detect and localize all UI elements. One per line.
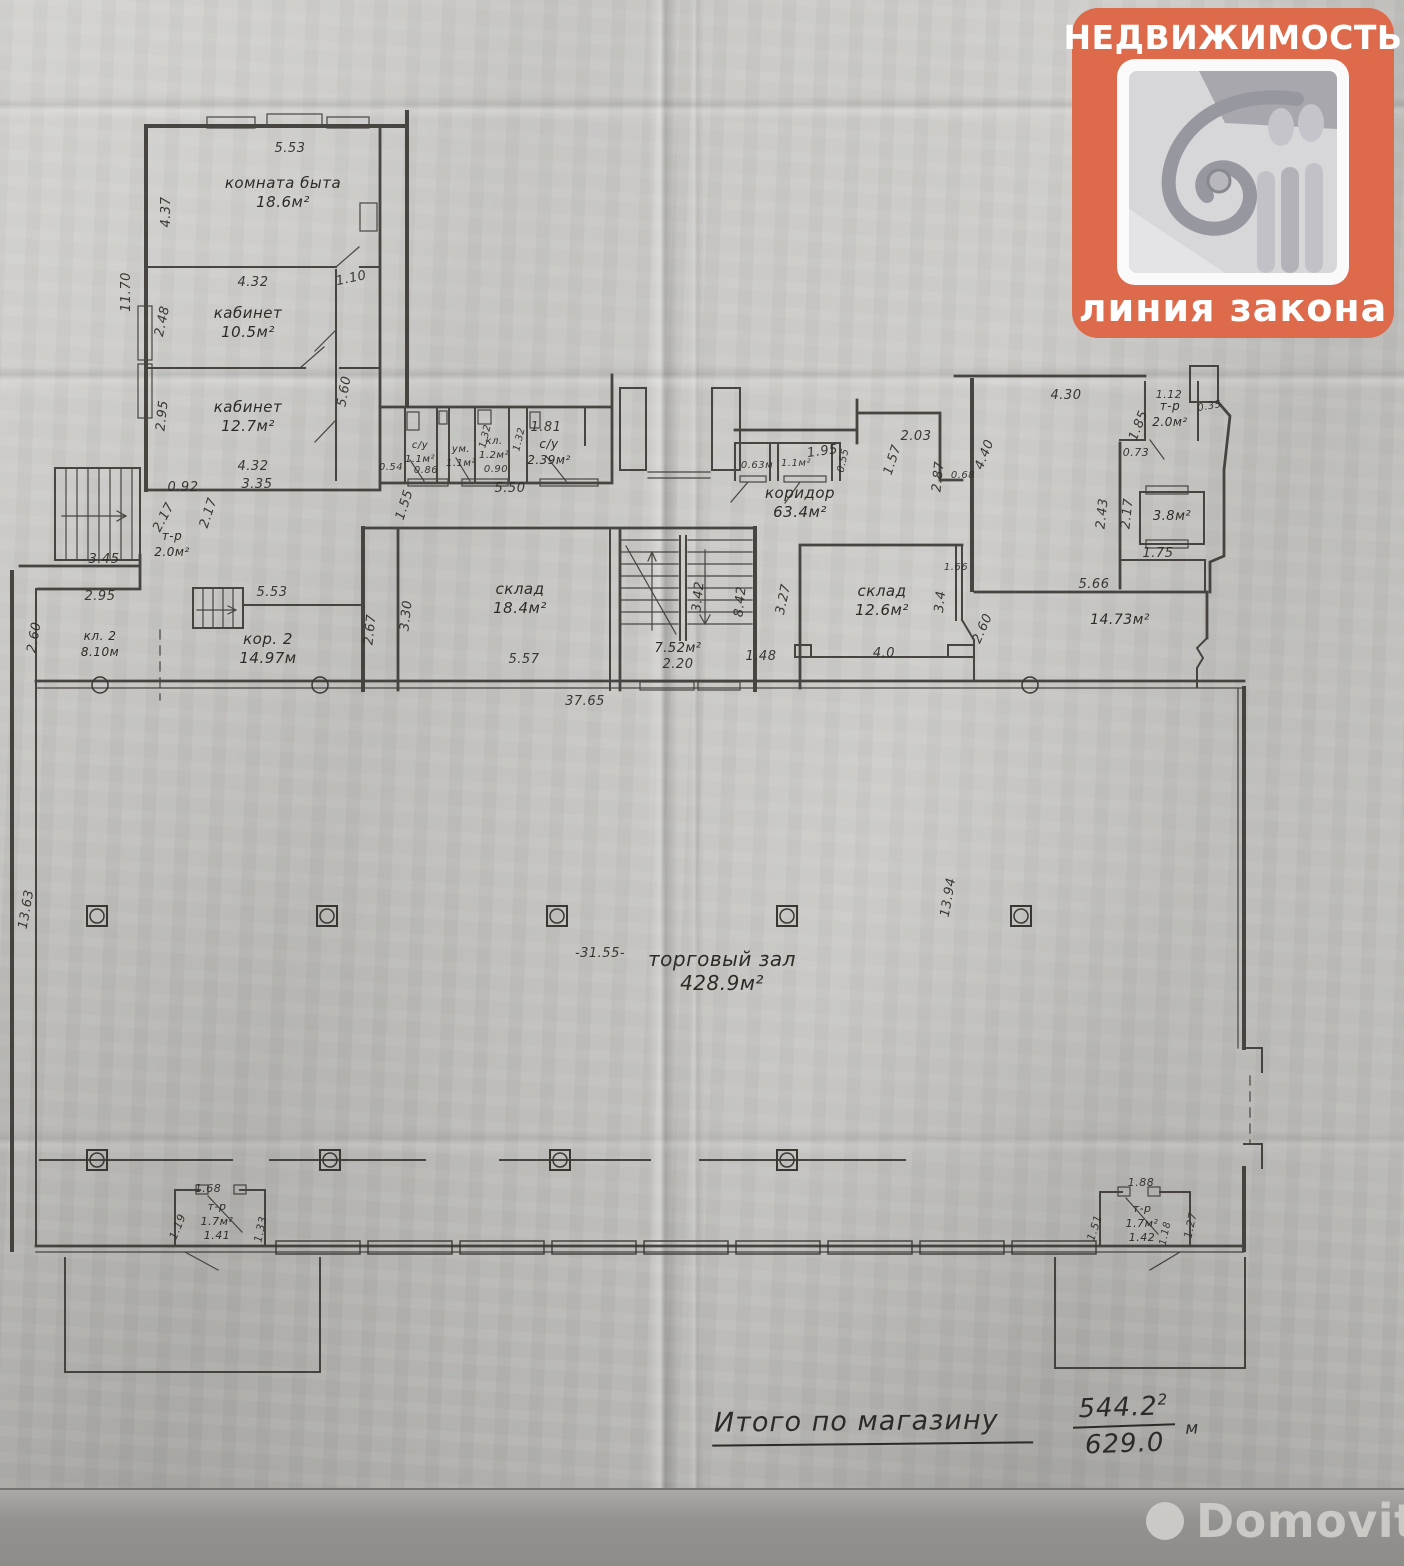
dimension-label: 1.95 <box>806 442 839 461</box>
room-area-label: 1.1м² <box>405 454 435 465</box>
room-area-label: 14.73м² <box>1090 612 1150 628</box>
dimension-label: 5.66 <box>1079 577 1110 592</box>
dimension-label: 3.27 <box>773 582 794 616</box>
column-circle <box>1014 909 1028 923</box>
dimension-label: 3.30 <box>397 599 415 631</box>
dimension-label: 2.60 <box>970 611 996 645</box>
room-label: т-р <box>1160 399 1180 413</box>
dimension-label: 2.87 <box>929 460 947 493</box>
dimension-label: 2.95 <box>85 589 116 604</box>
room-area-label: 18.6м² <box>256 193 310 211</box>
room-label: ум. <box>451 444 470 455</box>
dimension-label: 8.42 <box>731 585 749 617</box>
room-area-label: 7.52м² <box>655 641 702 656</box>
room-area-label: 3.8м² <box>1153 509 1191 524</box>
room-area-label: 1.2м² <box>479 450 509 461</box>
dimension-label: 1.85 <box>1126 409 1152 443</box>
room-area-label: 18.4м² <box>493 599 547 617</box>
plan-labels: 5.534.3711.704.321.102.485.602.954.320.9… <box>16 141 1223 1246</box>
dimension-label: 0.86 <box>414 465 438 476</box>
room-label: кабинет <box>214 398 283 416</box>
dimension-label: 1.68 <box>195 1182 222 1195</box>
room-area-label: 14.97м <box>239 649 296 667</box>
dimension-label: 1.51 <box>1084 1213 1105 1242</box>
dimension-label: 1.55 <box>393 488 417 522</box>
room-label: кл. 2 <box>84 629 117 643</box>
dimension-label: -31.55- <box>575 946 625 961</box>
dimension-label: 2.17 <box>1118 497 1136 530</box>
dimension-label: 2.67 <box>361 613 379 646</box>
room-label: т-р <box>208 1200 227 1213</box>
room-area-label: 2.0м² <box>154 545 189 559</box>
dimension-label: 13.63 <box>16 889 38 931</box>
dimension-label: 1.18 <box>1158 1220 1174 1246</box>
room-area-label: 2.0м² <box>1152 415 1187 429</box>
watermark-text: Domovita <box>1196 1494 1404 1548</box>
wall-column-circle <box>1022 677 1038 693</box>
hall-columns <box>87 677 1038 1170</box>
dimension-label: 3.45 <box>89 552 120 567</box>
wall-column-circle <box>312 677 328 693</box>
dimension-label: 1.33 <box>251 1215 269 1244</box>
dimension-label: 1.10 <box>335 268 368 289</box>
total-denominator: 629.0 <box>1073 1425 1176 1461</box>
dimension-label: 4.37 <box>159 196 174 227</box>
dimension-label: 0.68 <box>951 470 975 481</box>
dimension-label: 3.35 <box>242 477 273 492</box>
dimension-label: 4.40 <box>972 438 998 472</box>
dimension-label: 2.95 <box>153 399 171 431</box>
dimension-label: 3.4 <box>932 590 949 614</box>
dimension-label: 1.88 <box>1128 1176 1155 1189</box>
room-area-label: 12.6м² <box>855 601 909 619</box>
dimension-label: 1.1м² <box>781 458 811 469</box>
dimension-label: 0.54 <box>379 462 403 473</box>
column-circle <box>780 909 794 923</box>
dimension-label: 2.60 <box>24 621 44 654</box>
dimension-label: 5.50 <box>495 481 526 496</box>
room-area-label: 12.7м² <box>221 417 275 435</box>
room-area-label: 8.10м <box>81 645 119 659</box>
room-area-label: 428.9м² <box>680 971 764 995</box>
room-area-label: 1.7м² <box>201 1215 234 1228</box>
room-label: склад <box>858 582 907 600</box>
room-label: т-р <box>1133 1202 1152 1215</box>
scanned-floor-plan-photo: 5.534.3711.704.321.102.485.602.954.320.9… <box>0 0 1404 1566</box>
dimension-label: 11.70 <box>119 272 134 312</box>
room-label: кабинет <box>214 304 283 322</box>
dimension-label: 2.03 <box>901 429 932 444</box>
dimension-label: 2.17 <box>197 496 221 530</box>
room-area-label: 10.5м² <box>221 323 275 341</box>
logo-top-text: НЕДВИЖИМОСТЬ <box>1063 18 1402 57</box>
total-label: Итого по магазину <box>712 1404 1033 1446</box>
total-area-fraction: 544.22 629.0 м <box>1072 1390 1176 1460</box>
agency-logo: НЕДВИЖИМОСТЬ линия закона <box>1072 8 1394 338</box>
column-circle <box>550 909 564 923</box>
room-area-label: 1.7м² <box>1126 1217 1159 1230</box>
room-area-label: 63.4м² <box>773 503 827 521</box>
room-note-label: 1.41 <box>204 1229 231 1242</box>
room-label: склад <box>496 580 545 598</box>
dimension-label: 1.75 <box>1143 546 1174 561</box>
dimension-label: 4.30 <box>1051 388 1082 403</box>
room-label: с/у <box>539 437 559 451</box>
dimension-label: 5.57 <box>509 652 540 667</box>
dimension-label: 1.19 <box>167 1212 189 1241</box>
dimension-label: 5.60 <box>334 375 354 408</box>
wall-column-circle <box>92 677 108 693</box>
dimension-label: 1.32 <box>511 426 528 452</box>
room-note-label: 1.42 <box>1129 1231 1156 1244</box>
room-label: коридор <box>765 484 835 502</box>
watermark-dot-icon <box>1146 1502 1184 1540</box>
room-area-label: 1.1м² <box>446 458 476 469</box>
dimension-label: 4.32 <box>238 275 269 290</box>
dimension-label: 1.81 <box>531 420 562 435</box>
dimension-label: 0.92 <box>168 480 199 495</box>
logo-image-frame <box>1117 59 1349 285</box>
dimension-label: 37.65 <box>565 694 605 709</box>
room-label: кл. <box>485 436 502 447</box>
dimension-label: 0.90 <box>484 464 508 475</box>
dimension-label: 5.53 <box>257 585 288 600</box>
dimension-label: 2.20 <box>663 657 694 672</box>
logo-bottom-text: линия закона <box>1079 286 1388 330</box>
dimension-label: 13.94 <box>938 877 960 919</box>
room-label: с/у <box>412 440 429 451</box>
dimension-label: 0.63м <box>741 460 773 471</box>
dimension-label: 4.0 <box>873 646 895 661</box>
dimension-label: 2.48 <box>152 305 173 338</box>
watermark: Domovita <box>1146 1494 1404 1548</box>
total-numerator: 544.22 <box>1072 1390 1175 1428</box>
total-area-note: Итого по магазину 544.22 629.0 м <box>712 1392 1175 1459</box>
dimension-label: 2.43 <box>1093 497 1111 529</box>
column-circle <box>90 909 104 923</box>
column-capital-icon <box>1129 71 1337 273</box>
room-area-label: 2.39м² <box>527 453 571 467</box>
dimension-label: 4.32 <box>238 459 269 474</box>
room-label: комната быта <box>225 174 341 192</box>
room-label: торговый зал <box>648 947 796 971</box>
dimension-label: 1.66 <box>944 562 968 573</box>
dimension-label: 1.27 <box>1181 1211 1199 1240</box>
dimension-label: 5.53 <box>275 141 306 156</box>
dimension-label: 1.57 <box>881 443 905 477</box>
room-label: т-р <box>162 529 182 543</box>
room-label: кор. 2 <box>243 630 293 648</box>
column-circle <box>320 909 334 923</box>
dimension-label: 0.73 <box>1123 446 1150 459</box>
dimension-label: 1.48 <box>746 649 777 664</box>
total-unit: м <box>1185 1419 1200 1439</box>
